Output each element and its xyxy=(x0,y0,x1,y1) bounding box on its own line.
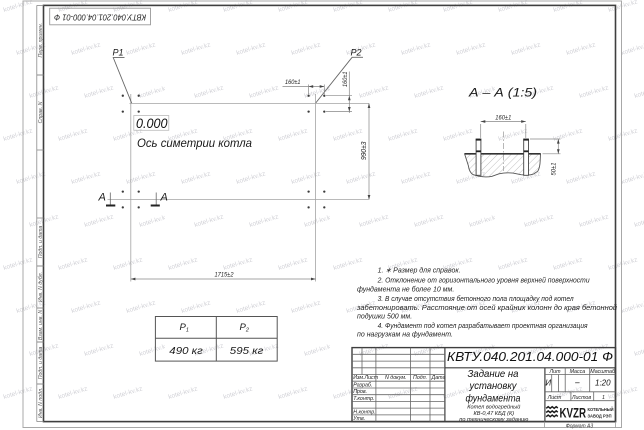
svg-text:A: A xyxy=(98,192,106,204)
svg-text:КВТУ.040.201.04.000-01 Ф: КВТУ.040.201.04.000-01 Ф xyxy=(54,12,146,21)
svg-text:4. Фундамент под котел разраба: 4. Фундамент под котел разрабатывает про… xyxy=(378,322,588,330)
svg-text:160±1: 160±1 xyxy=(495,115,511,122)
svg-text:по техническому заданию: по техническому заданию xyxy=(459,417,529,423)
svg-text:490 кг: 490 кг xyxy=(169,345,203,357)
svg-text:Разраб.: Разраб. xyxy=(353,383,372,389)
svg-text:Масса: Масса xyxy=(570,369,586,375)
svg-text:1:20: 1:20 xyxy=(595,379,611,388)
svg-text:Лит: Лит xyxy=(549,369,562,375)
svg-text:Взам. инв. N: Взам. инв. N xyxy=(38,310,44,340)
svg-text:–: – xyxy=(574,378,580,387)
svg-text:И: И xyxy=(545,379,551,388)
svg-text:Задание на: Задание на xyxy=(468,368,519,380)
svg-text:3. В случае отсутствия бетонно: 3. В случае отсутствия бетонного пола пл… xyxy=(378,295,574,303)
svg-text:Перв. примен.: Перв. примен. xyxy=(38,23,44,57)
svg-text:Т.контр.: Т.контр. xyxy=(353,396,374,402)
svg-text:ЗАВОД РЭП: ЗАВОД РЭП xyxy=(588,414,612,419)
svg-text:160±1: 160±1 xyxy=(342,71,349,87)
svg-text:1. ∗ Размер для справок.: 1. ∗ Размер для справок. xyxy=(378,266,461,274)
svg-text:Пров.: Пров. xyxy=(353,389,367,395)
svg-text:Инв. N подл.: Инв. N подл. xyxy=(38,388,44,418)
svg-text:Инв. N дубл.: Инв. N дубл. xyxy=(38,272,44,302)
svg-text:Подп.: Подп. xyxy=(413,375,427,381)
svg-text:Подп. и дата: Подп. и дата xyxy=(38,226,44,259)
svg-text:Подп. и дата: Подп. и дата xyxy=(38,347,44,380)
svg-text:КОТЕЛЬНЫЙ: КОТЕЛЬНЫЙ xyxy=(588,405,614,412)
svg-text:Лист: Лист xyxy=(547,395,562,401)
svg-text:Котел водогрейный: Котел водогрейный xyxy=(467,403,520,410)
svg-text:Дата: Дата xyxy=(431,375,446,381)
svg-text:А – А (1:5): А – А (1:5) xyxy=(468,88,537,100)
svg-text:0.000: 0.000 xyxy=(136,116,168,131)
svg-text:N докум.: N докум. xyxy=(385,375,406,381)
svg-text:фундамента: фундамента xyxy=(466,393,521,405)
svg-text:Формат А3: Формат А3 xyxy=(566,423,594,429)
svg-text:1715±2: 1715±2 xyxy=(215,272,234,279)
svg-text:по нагрузкам на фундамент.: по нагрузкам на фундамент. xyxy=(357,331,453,339)
svg-text:P1: P1 xyxy=(113,48,124,58)
svg-text:A: A xyxy=(160,192,168,204)
svg-text:забетонировать. Расстояние от: забетонировать. Расстояние от осей крайн… xyxy=(356,304,617,312)
svg-text:P2: P2 xyxy=(351,48,362,58)
svg-text:фундамента не более 10 мм.: фундамента не более 10 мм. xyxy=(357,286,454,294)
svg-text:Утв.: Утв. xyxy=(353,416,365,422)
svg-text:Изм.Лист: Изм.Лист xyxy=(353,375,379,381)
svg-text:1: 1 xyxy=(602,395,605,401)
svg-text:50±1: 50±1 xyxy=(551,162,558,175)
svg-text:подушки 500 мм.: подушки 500 мм. xyxy=(357,312,412,320)
svg-text:КВТУ.040.201.04.000-01 Ф: КВТУ.040.201.04.000-01 Ф xyxy=(447,350,613,364)
svg-text:Справ. N: Справ. N xyxy=(38,101,44,123)
svg-text:Н.контр.: Н.контр. xyxy=(353,409,375,415)
svg-text:установку: установку xyxy=(469,380,518,392)
svg-text:2. Отклонение от горизонтально: 2. Отклонение от горизонтального уровня … xyxy=(377,277,590,285)
svg-text:990±3: 990±3 xyxy=(359,142,368,161)
svg-text:KVZR: KVZR xyxy=(560,406,587,421)
svg-text:Ось симетрии котла: Ось симетрии котла xyxy=(137,138,252,150)
svg-text:160±1: 160±1 xyxy=(285,79,301,86)
svg-text:Листов: Листов xyxy=(571,395,592,401)
svg-text:595 кг: 595 кг xyxy=(230,345,263,357)
svg-text:Масштаб: Масштаб xyxy=(590,369,616,375)
